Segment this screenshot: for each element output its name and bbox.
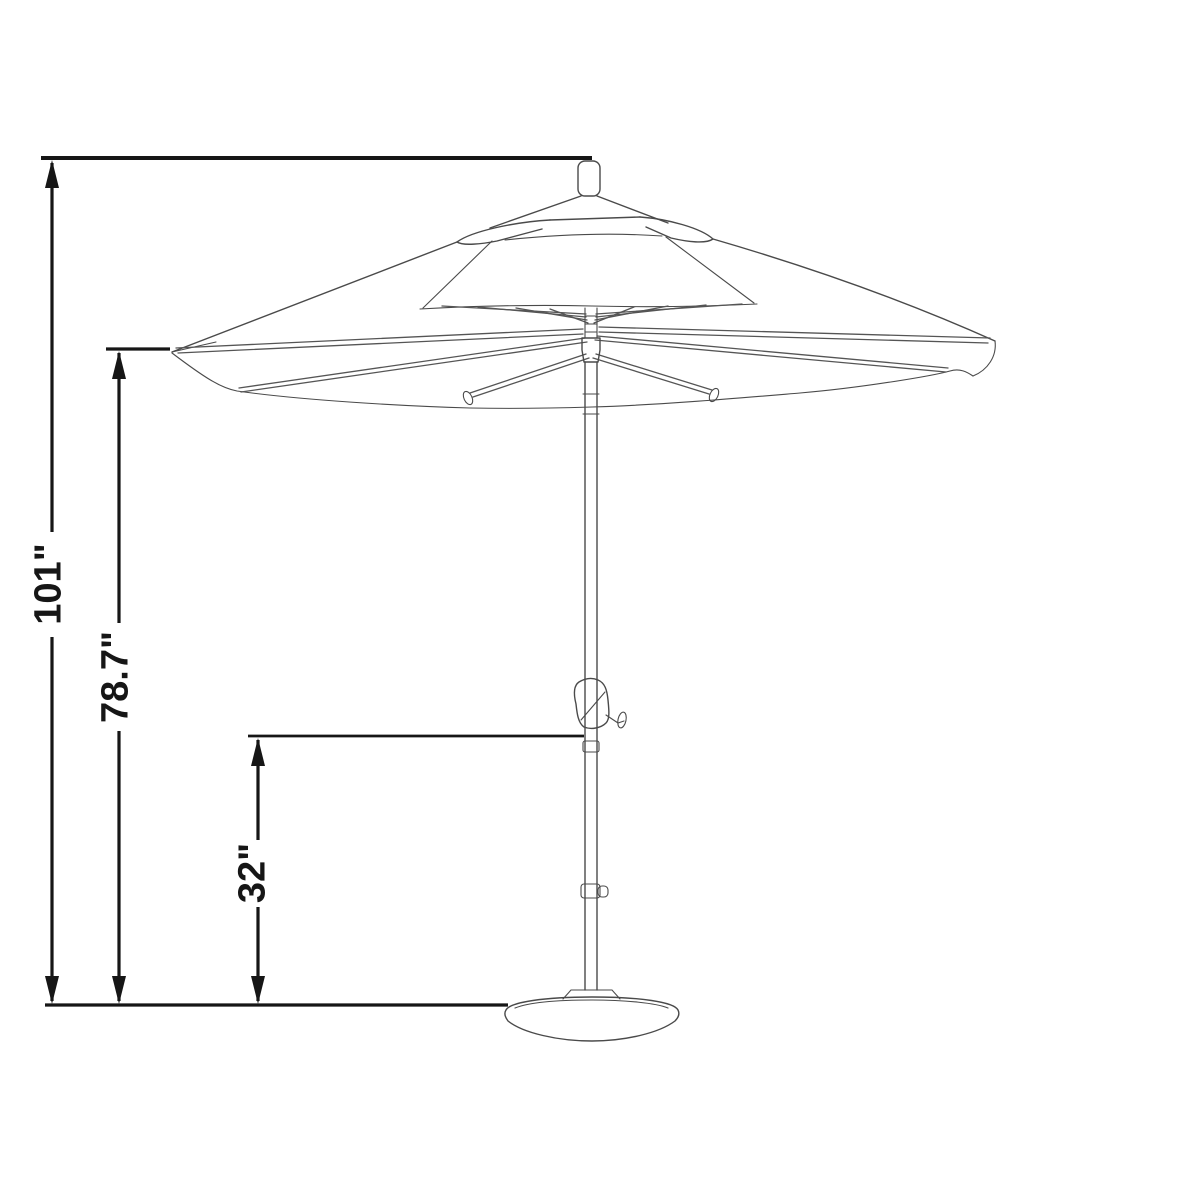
pole [583, 362, 599, 990]
arrow-up-icon [251, 738, 265, 766]
dimension-crank-height [248, 736, 584, 1004]
dimension-overall-height [41, 158, 592, 1004]
dimension-label-canopy-clearance: 78.7" [95, 631, 138, 723]
dimension-label-crank-height: 32" [232, 843, 275, 903]
crank-handle [574, 679, 627, 729]
canopy-ribs [176, 304, 990, 392]
base [505, 990, 679, 1041]
umbrella-drawing [172, 161, 995, 1041]
arrow-up-icon [45, 160, 59, 188]
canopy-vent [457, 217, 713, 244]
dimension-label-overall-height: 101" [28, 543, 71, 624]
arrow-up-icon [112, 351, 126, 379]
arrow-down-icon [45, 976, 59, 1004]
finial [578, 161, 600, 196]
arrow-down-icon [112, 976, 126, 1004]
arrow-down-icon [251, 976, 265, 1004]
umbrella-dimension-diagram [0, 0, 1200, 1200]
diagram-canvas: 101" 78.7" 32" [0, 0, 1200, 1200]
